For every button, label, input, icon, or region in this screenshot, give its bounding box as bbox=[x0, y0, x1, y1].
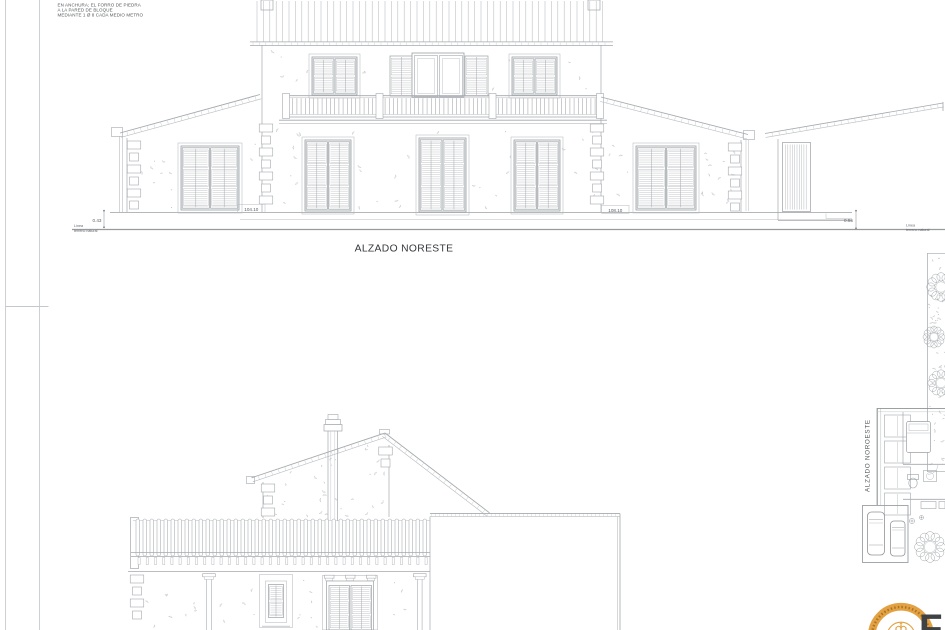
terrain-label-left-2: terreno natural bbox=[74, 229, 98, 233]
level-left: 104.10 bbox=[244, 207, 258, 212]
terrain-label-right-1: Línea bbox=[906, 223, 915, 227]
sheet-margin-lines bbox=[5, 0, 49, 630]
construction-note: EN ANCHURA; EL FORRO DE PIEDRA A LA PARE… bbox=[58, 2, 144, 17]
drawing-sheet: EN ANCHURA; EL FORRO DE PIEDRA A LA PARE… bbox=[0, 0, 945, 630]
dim-left-plinth: 0.43 bbox=[93, 218, 102, 223]
side-elevation-vertical-label: ALZADO NOROESTE bbox=[865, 419, 872, 492]
dim-right-plinth: 0.55 bbox=[844, 218, 853, 223]
elevation-partial-drawing bbox=[128, 415, 620, 630]
site-plan-fragment bbox=[863, 253, 945, 563]
level-right: 108.10 bbox=[608, 208, 622, 213]
elevation-title: ALZADO NORESTE bbox=[355, 244, 454, 255]
terrain-label-right-2: terreno natural bbox=[906, 228, 930, 232]
elevation-noreste-drawing bbox=[72, 0, 945, 230]
brand-letter: F bbox=[919, 608, 943, 630]
architectural-drawing: EN ANCHURA; EL FORRO DE PIEDRA A LA PARE… bbox=[0, 0, 945, 630]
note-line-3: MEDIANTE 1 Ø 8 CADA MEDIO METRO bbox=[58, 13, 144, 18]
terrain-label-left-1: Línea bbox=[74, 224, 83, 228]
